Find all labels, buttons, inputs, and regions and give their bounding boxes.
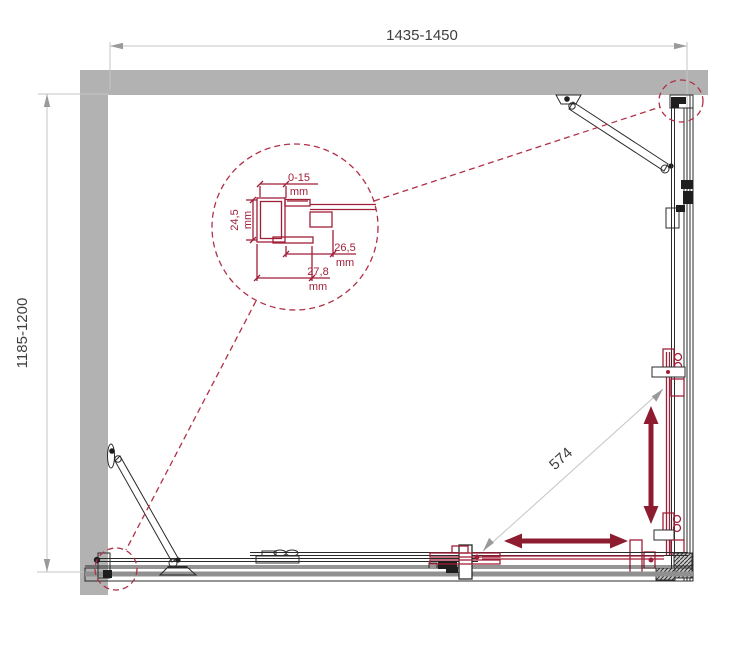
detail-dim-adjust: 0-15 mm xyxy=(257,172,318,198)
roller-body xyxy=(671,540,684,554)
top-support-brace xyxy=(556,95,674,173)
roller-body xyxy=(671,379,684,396)
diagonal-dim-line xyxy=(483,389,663,551)
brace-pivot-dot xyxy=(564,96,570,102)
right-roller-upper xyxy=(652,349,685,396)
profile-depth-unit-label: mm xyxy=(242,211,254,229)
slide-arrow-horizontal xyxy=(504,534,628,549)
adjust-value-label: 0-15 xyxy=(288,172,310,184)
detail-leader-top xyxy=(374,107,660,201)
depth-arrow-top xyxy=(44,94,50,107)
dim27-value-label: 27,8 xyxy=(307,266,328,278)
brace-bar xyxy=(569,102,668,171)
roller-tab xyxy=(654,530,674,540)
top-wall xyxy=(80,70,708,95)
rail-track xyxy=(85,572,693,577)
depth-arrow-bottom xyxy=(44,559,50,572)
roller-body xyxy=(663,349,674,369)
diagonal-arrow-end xyxy=(652,389,663,402)
roller-wheel xyxy=(675,354,682,361)
guide-dot xyxy=(475,555,480,560)
diagonal-dimension: 574 xyxy=(483,389,663,551)
bottom-support-brace xyxy=(108,444,197,575)
brace-end-dot xyxy=(175,557,180,562)
dim26-value-label: 26,5 xyxy=(334,242,355,254)
slide-arrow-vertical xyxy=(644,406,659,524)
detail-dim-27: 27,8 mm xyxy=(254,244,330,293)
drawing-canvas: 1435-1450 1185-1200 xyxy=(0,0,750,648)
dim26-unit-label: mm xyxy=(336,257,354,269)
brace-bar xyxy=(115,456,178,562)
bottom-rail xyxy=(85,566,693,581)
walls xyxy=(80,70,708,595)
profile-outer xyxy=(257,198,285,242)
width-arrow-left xyxy=(110,43,123,49)
profile-clamp xyxy=(310,212,332,227)
left-wall xyxy=(80,70,108,595)
width-dimension-label: 1435-1450 xyxy=(386,27,458,44)
diagonal-arrow-start xyxy=(483,538,494,551)
profile-depth-value-label: 24,5 xyxy=(229,209,241,230)
profile-inner xyxy=(261,202,282,239)
brace-wall-mount xyxy=(108,444,115,468)
brace-pivot-dot xyxy=(109,448,115,454)
depth-dimension-label: 1185-1200 xyxy=(14,298,31,369)
profile-detail: 0-15 mm 24,5 mm 26,5 mm xyxy=(229,172,376,293)
roller-dot xyxy=(666,370,670,374)
bracket-block xyxy=(103,570,112,578)
detail-dim-26: 26,5 mm xyxy=(283,230,356,269)
detail-dim-depth: 24,5 mm xyxy=(229,197,257,243)
shower-enclosure-plan-drawing: 1435-1450 1185-1200 xyxy=(0,0,750,648)
adjust-unit-label: mm xyxy=(290,186,308,198)
dim27-unit-label: mm xyxy=(309,281,327,293)
width-arrow-right xyxy=(674,43,687,49)
rail-connector xyxy=(681,180,693,189)
width-dimension: 1435-1450 xyxy=(110,27,687,108)
rail-top-bracket-fill xyxy=(671,97,686,108)
guide-block xyxy=(446,567,458,573)
door-panels xyxy=(97,553,688,562)
diagonal-dimension-label: 574 xyxy=(546,444,576,473)
rail-connector xyxy=(683,191,693,204)
guide-post xyxy=(459,545,472,579)
roller-body xyxy=(663,513,674,531)
detail-leader-bottom xyxy=(126,301,256,550)
guide-dot xyxy=(649,558,654,563)
